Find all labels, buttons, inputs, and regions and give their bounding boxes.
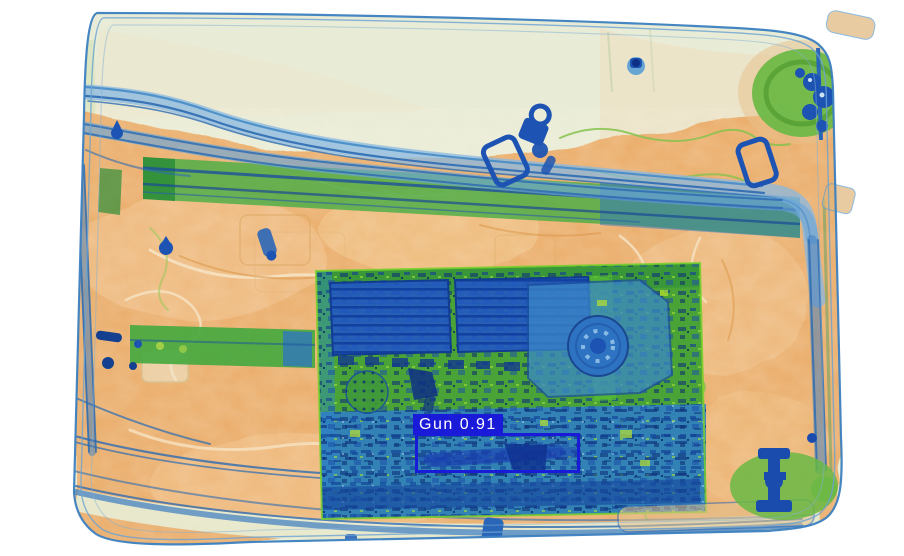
wheel-top-right (738, 40, 862, 144)
xray-scan-image (0, 0, 904, 556)
telescopic-handle-rail-lower (130, 325, 315, 368)
laptop-electronics (316, 263, 706, 519)
side-handle (24, 193, 76, 396)
xray-viewport: Gun 0.91 (0, 0, 904, 556)
